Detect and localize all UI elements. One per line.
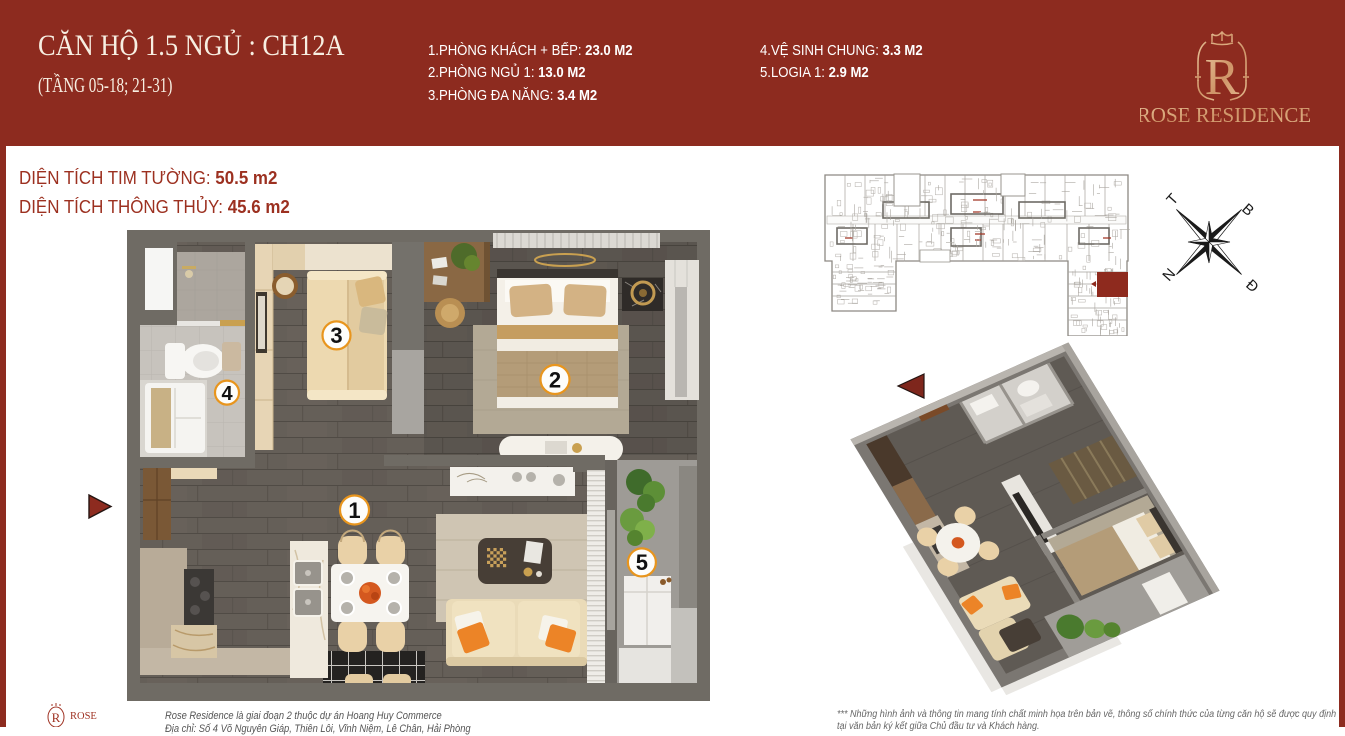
svg-text:3: 3 [330, 323, 342, 348]
svg-text:4: 4 [221, 383, 233, 405]
svg-text:T: T [1163, 190, 1182, 208]
svg-text:ROSE: ROSE [70, 711, 97, 722]
svg-text:R: R [1205, 49, 1240, 106]
svg-text:5: 5 [636, 550, 648, 575]
svg-text:N: N [1159, 265, 1179, 284]
svg-text:R: R [52, 710, 61, 725]
svg-text:ROSE RESIDENCE: ROSE RESIDENCE [1140, 103, 1310, 127]
svg-text:Đ: Đ [1242, 276, 1262, 295]
svg-text:1: 1 [348, 498, 360, 523]
svg-text:2: 2 [549, 368, 561, 393]
svg-text:B: B [1238, 200, 1257, 219]
